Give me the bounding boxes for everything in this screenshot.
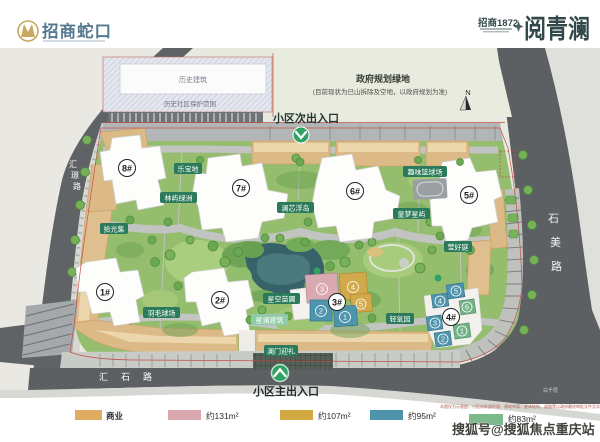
svg-text:招商1872: 招商1872: [478, 17, 518, 29]
svg-text:招商蛇口: 招商蛇口: [42, 21, 112, 41]
svg-text:2: 2: [441, 335, 445, 344]
svg-text:轻氧园: 轻氧园: [390, 315, 411, 324]
svg-text:6#: 6#: [350, 187, 360, 197]
svg-text:星空苗圃: 星空苗圃: [268, 295, 296, 304]
svg-text:5: 5: [359, 300, 363, 309]
svg-text:5: 5: [454, 287, 458, 296]
svg-text:4: 4: [351, 283, 355, 292]
svg-text:趣味篮球场: 趣味篮球场: [408, 168, 443, 177]
svg-text:美: 美: [550, 236, 561, 249]
svg-text:1: 1: [343, 313, 347, 322]
svg-text:3#: 3#: [332, 298, 342, 308]
svg-text:约95m²: 约95m²: [408, 411, 436, 421]
svg-text:1#: 1#: [100, 288, 110, 298]
svg-text:童梦星屿: 童梦星屿: [398, 210, 426, 219]
svg-text:3: 3: [433, 319, 437, 328]
svg-text:澜门迎礼: 澜门迎礼: [267, 347, 295, 356]
svg-text:历史建筑: 历史建筑: [179, 75, 207, 84]
svg-text:汇: 汇: [69, 160, 77, 169]
svg-text:6: 6: [465, 303, 469, 312]
svg-text:路: 路: [551, 260, 562, 273]
svg-text:澜芯浮岛: 澜芯浮岛: [282, 204, 310, 213]
svg-text:(目前现状为已山拆除及空地，以政府规划为准): (目前现状为已山拆除及空地，以政府规划为准): [313, 87, 447, 96]
svg-text:林屿绿洲: 林屿绿洲: [165, 194, 193, 203]
svg-text:5#: 5#: [464, 191, 474, 201]
svg-text:莹好庭: 莹好庭: [448, 243, 469, 252]
svg-text:白千层: 白千层: [543, 387, 558, 394]
svg-text:历史社区保护范围: 历史社区保护范围: [164, 99, 216, 108]
svg-text:N: N: [465, 88, 470, 97]
svg-text:拾光集: 拾光集: [104, 225, 125, 234]
svg-text:商业: 商业: [106, 411, 124, 421]
svg-text:璟: 璟: [71, 171, 79, 180]
svg-text:4#: 4#: [446, 313, 456, 323]
svg-text:石: 石: [548, 213, 559, 225]
svg-text:3: 3: [320, 285, 324, 294]
svg-text:阅青澜: 阅青澜: [524, 14, 590, 44]
svg-text:本图仅为示意图，小区内外部环境、建筑布局、星体结构、道路等以: 本图仅为示意图，小区内外部环境、建筑布局、星体结构、道路等以政府最终审批文件及实…: [440, 403, 600, 409]
svg-text:羽毛球场: 羽毛球场: [148, 309, 176, 318]
svg-text:星澜建筑: 星澜建筑: [256, 316, 284, 325]
svg-text:汇石路: 汇石路: [99, 371, 165, 382]
svg-text:搜狐号@搜狐焦点重庆站: 搜狐号@搜狐焦点重庆站: [452, 422, 595, 437]
svg-text:政府规划绿地: 政府规划绿地: [356, 73, 410, 84]
svg-text:4: 4: [438, 297, 442, 306]
svg-text:小区次出入口: 小区次出入口: [272, 111, 339, 125]
svg-text:8#: 8#: [122, 164, 132, 174]
svg-text:约131m²: 约131m²: [206, 411, 239, 421]
svg-text:2: 2: [319, 307, 323, 316]
svg-text:2#: 2#: [215, 296, 225, 306]
svg-text:7#: 7#: [236, 184, 246, 194]
svg-text:约107m²: 约107m²: [318, 411, 351, 421]
svg-text:路: 路: [73, 181, 81, 191]
svg-text:1: 1: [460, 327, 464, 336]
svg-text:乐宝地: 乐宝地: [178, 165, 199, 174]
svg-text:小区主出入口: 小区主出入口: [252, 384, 319, 398]
